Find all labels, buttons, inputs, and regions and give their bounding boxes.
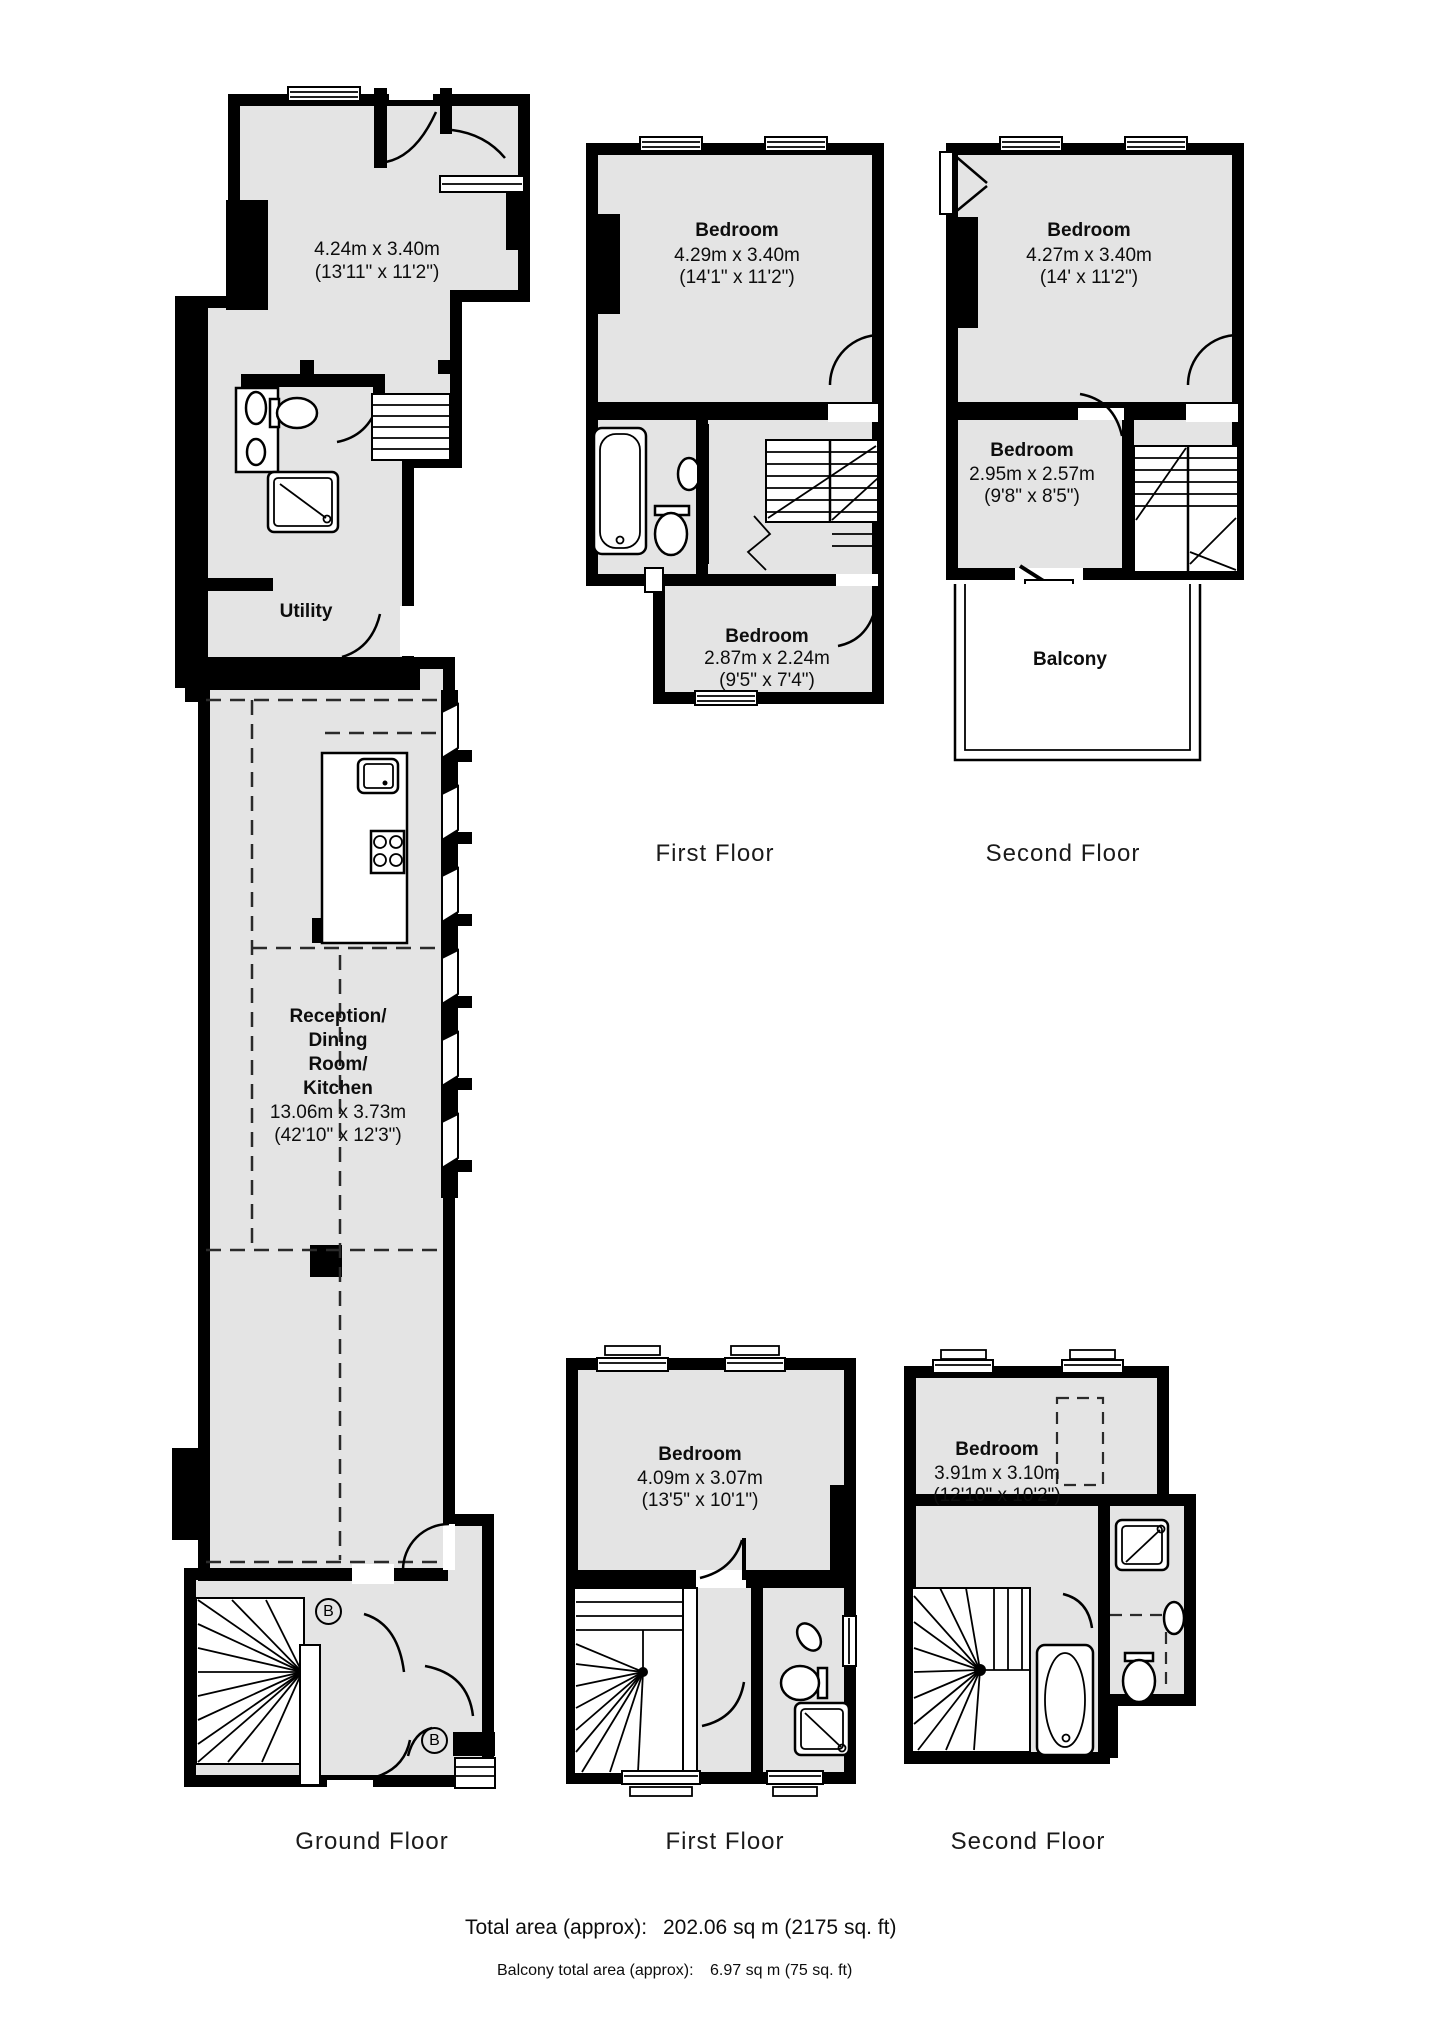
toilet-icon — [781, 1666, 819, 1700]
window — [767, 1771, 823, 1784]
gf-reception-line1: Reception/ — [289, 1007, 386, 1028]
first-floor-lower-plan — [572, 1346, 856, 1796]
basin-icon — [246, 392, 266, 424]
window — [640, 137, 702, 151]
total-area-value: 202.06 sq m (2175 sq. ft) — [663, 1916, 896, 1940]
ff2-bedroom-dims-m: 4.09m x 3.07m — [637, 1469, 763, 1490]
ff1-bedroom2-dims-ft: (9'5" x 7'4") — [719, 671, 815, 692]
window — [597, 1358, 668, 1371]
gf-utility-label: Utility — [280, 602, 333, 623]
sf1-bedroom2-name: Bedroom — [990, 441, 1073, 462]
window — [1125, 137, 1187, 151]
stairs — [196, 1598, 320, 1785]
boiler-symbol: B — [421, 1727, 448, 1754]
window — [695, 691, 757, 705]
front-door-gap — [389, 88, 433, 100]
window — [765, 137, 827, 151]
stairs — [574, 1588, 697, 1776]
basin-icon — [1164, 1602, 1184, 1634]
basin-icon — [247, 439, 265, 465]
gf-front-room-dims-m: 4.24m x 3.40m — [314, 240, 440, 261]
toilet-icon — [277, 398, 317, 428]
second-floor-lower-plan — [910, 1350, 1190, 1758]
window — [1062, 1360, 1123, 1373]
sf2-bedroom-dims-ft: (12'10" x 10'2") — [933, 1486, 1060, 1507]
window — [940, 152, 953, 214]
sf1-bedroom-dims-ft: (14' x 11'2") — [1040, 268, 1138, 289]
label-ground-floor: Ground Floor — [295, 1828, 448, 1856]
window — [288, 87, 360, 101]
floorplan-drawing — [0, 0, 1429, 2025]
ff1-bedroom2-dims-m: 2.87m x 2.24m — [704, 649, 830, 670]
gf-reception-line2: Dining — [308, 1031, 367, 1052]
sf2-bedroom-name: Bedroom — [955, 1440, 1038, 1461]
basin-icon — [678, 458, 700, 490]
ff1-bedroom-dims-ft: (14'1" x 11'2") — [679, 268, 794, 289]
gf-front-room-dims-ft: (13'11" x 11'2") — [315, 263, 440, 284]
boiler-symbol: B — [315, 1598, 342, 1625]
entry-steps — [455, 1758, 495, 1788]
window — [725, 1358, 785, 1371]
gf-reception-dims-ft: (42'10" x 12'3") — [274, 1126, 401, 1147]
ff2-bedroom-name: Bedroom — [658, 1445, 741, 1466]
window — [622, 1771, 700, 1784]
sf2-bedroom-dims-m: 3.91m x 3.10m — [934, 1464, 1060, 1485]
balcony-area-value: 6.97 sq m (75 sq. ft) — [710, 1962, 852, 1980]
balcony-outline — [955, 584, 1200, 760]
label-first-floor-lower: First Floor — [666, 1828, 785, 1856]
toilet-icon — [655, 513, 687, 555]
window — [933, 1360, 993, 1373]
balcony-area-label: Balcony total area (approx): — [497, 1962, 694, 1980]
chimney-breast — [586, 214, 620, 314]
gf-reception-line3: Room/ — [308, 1055, 367, 1076]
total-area-label: Total area (approx): — [465, 1916, 647, 1940]
floorplan-page: { "plans": { "ground_floor": { "floor_la… — [0, 0, 1429, 2025]
sf1-bedroom2-dims-m: 2.95m x 2.57m — [969, 465, 1095, 486]
ff2-bedroom-dims-ft: (13'5" x 10'1") — [642, 1491, 759, 1512]
label-second-floor-upper: Second Floor — [986, 840, 1141, 868]
sf1-balcony-label: Balcony — [1033, 650, 1107, 671]
sf1-bedroom2-dims-ft: (9'8" x 8'5") — [984, 487, 1080, 508]
ff1-bedroom-name: Bedroom — [695, 221, 778, 242]
ff1-bedroom2-name: Bedroom — [725, 627, 808, 648]
bath-icon — [594, 428, 646, 554]
gf-reception-line4: Kitchen — [303, 1079, 373, 1100]
label-second-floor-lower: Second Floor — [951, 1828, 1106, 1856]
stairs — [1134, 446, 1238, 572]
chimney-breast — [946, 217, 978, 328]
toilet-icon — [1123, 1660, 1155, 1702]
gf-reception-dims-m: 13.06m x 3.73m — [270, 1103, 406, 1124]
stairs — [912, 1588, 1030, 1752]
ground-floor-plan — [172, 87, 524, 1794]
ff1-bedroom-dims-m: 4.29m x 3.40m — [674, 246, 800, 267]
sf1-bedroom-dims-m: 4.27m x 3.40m — [1026, 246, 1152, 267]
chimney-breast — [226, 200, 268, 310]
sf1-bedroom-name: Bedroom — [1047, 221, 1130, 242]
window — [1000, 137, 1062, 151]
label-first-floor-upper: First Floor — [656, 840, 775, 868]
